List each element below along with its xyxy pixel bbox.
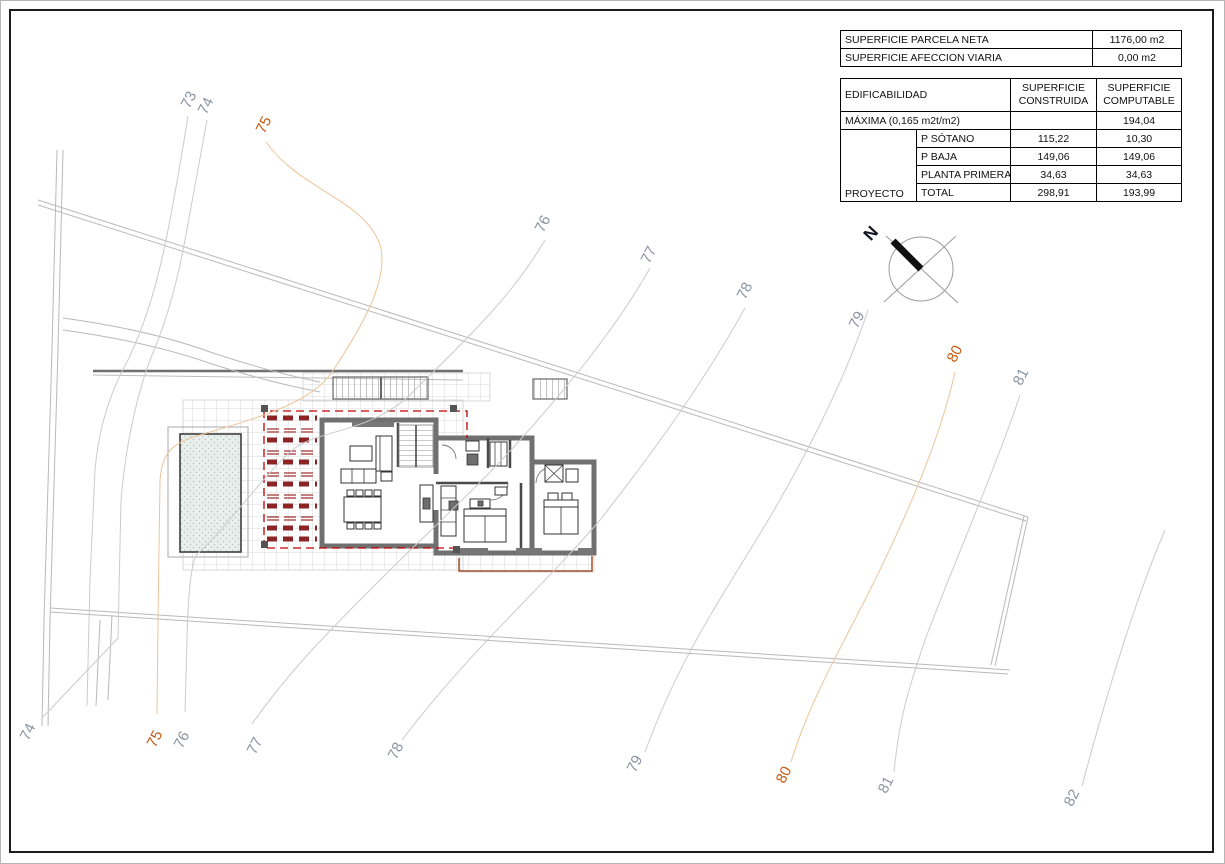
edificabilidad-table: EDIFICABILIDAD SUPERFICIE CONSTRUIDA SUP… xyxy=(840,78,1182,202)
bathroom-sink xyxy=(466,441,479,451)
sink xyxy=(423,498,430,509)
maxima-construida xyxy=(1011,112,1097,130)
primera-construida: 34,63 xyxy=(1011,166,1097,184)
table-row: SUPERFICIE PARCELA NETA 1176,00 m2 xyxy=(841,31,1182,49)
shelf xyxy=(566,469,578,482)
wardrobe-shelves xyxy=(441,486,456,536)
table-row-sotano: PROYECTO P SÓTANO 115,22 10,30 xyxy=(841,130,1182,148)
contour-label-77b: 77 xyxy=(244,735,267,758)
parcel-neta-value: 1176,00 m2 xyxy=(1093,31,1182,49)
pergola-post xyxy=(450,405,457,412)
computable-header: SUPERFICIE COMPUTABLE xyxy=(1097,79,1182,112)
contour-label-80: 80 xyxy=(944,343,967,366)
baja-computable: 149,06 xyxy=(1097,148,1182,166)
sotano-label: P SÓTANO xyxy=(917,130,1011,148)
contour-label-79: 79 xyxy=(846,309,869,332)
parcel-area-table: SUPERFICIE PARCELA NETA 1176,00 m2 SUPER… xyxy=(840,30,1182,67)
total-label: TOTAL xyxy=(917,184,1011,202)
contour-label-78b: 78 xyxy=(385,740,408,763)
maxima-label: MÁXIMA (0,165 m2t/m2) xyxy=(841,112,1011,130)
maxima-computable: 194,04 xyxy=(1097,112,1182,130)
proyecto-group-label: PROYECTO xyxy=(841,130,917,202)
north-label: N xyxy=(860,222,882,244)
contour-label-82b: 82 xyxy=(1061,787,1084,810)
table-header-row: EDIFICABILIDAD SUPERFICIE CONSTRUIDA SUP… xyxy=(841,79,1182,112)
table-row-maxima: MÁXIMA (0,165 m2t/m2) 194,04 xyxy=(841,112,1182,130)
side-table xyxy=(381,472,392,481)
pillow xyxy=(548,493,558,500)
window-sill xyxy=(460,548,488,554)
contour-label-81: 81 xyxy=(1010,366,1033,389)
toilet xyxy=(467,454,478,465)
contour-label-81b: 81 xyxy=(875,774,898,797)
sotano-construida: 115,22 xyxy=(1011,130,1097,148)
pergola-post xyxy=(453,546,460,553)
contour-label-75b: 75 xyxy=(144,728,167,751)
contour-label-77: 77 xyxy=(638,244,661,267)
contour-label-78: 78 xyxy=(734,280,757,303)
parcel-viaria-label: SUPERFICIE AFECCION VIARIA xyxy=(841,49,1093,67)
contour-label-76b: 76 xyxy=(171,729,194,752)
pergola-post xyxy=(261,405,268,412)
contour-label-76: 76 xyxy=(532,213,555,236)
pool xyxy=(168,427,248,557)
window-sill xyxy=(578,548,593,554)
desk xyxy=(495,487,507,495)
construida-header: SUPERFICIE CONSTRUIDA xyxy=(1011,79,1097,112)
edificabilidad-header: EDIFICABILIDAD xyxy=(841,79,1011,112)
table-row: SUPERFICIE AFECCION VIARIA 0,00 m2 xyxy=(841,49,1182,67)
sotano-computable: 10,30 xyxy=(1097,130,1182,148)
pergola-post xyxy=(261,541,268,548)
contour-label-80b: 80 xyxy=(773,764,796,787)
total-construida: 298,91 xyxy=(1011,184,1097,202)
primera-label: PLANTA PRIMERA xyxy=(917,166,1011,184)
contour-label-75: 75 xyxy=(253,114,276,137)
primera-computable: 34,63 xyxy=(1097,166,1182,184)
window-sill xyxy=(516,548,542,554)
north-needle xyxy=(893,241,921,269)
parcel-neta-label: SUPERFICIE PARCELA NETA xyxy=(841,31,1093,49)
baja-label: P BAJA xyxy=(917,148,1011,166)
north-arrow: N xyxy=(860,222,958,303)
baja-construida: 149,06 xyxy=(1011,148,1097,166)
sofa xyxy=(341,469,376,483)
contour-label-74b: 74 xyxy=(17,721,40,744)
pillow xyxy=(562,493,572,500)
parcel-viaria-value: 0,00 m2 xyxy=(1093,49,1182,67)
coffee-table xyxy=(350,446,372,461)
total-computable: 193,99 xyxy=(1097,184,1182,202)
dining-table xyxy=(344,497,381,522)
site-plan-sheet: { "sheet": {"type": "architectural-site-… xyxy=(0,0,1225,864)
sofa-chaise xyxy=(376,436,392,471)
contour-label-79b: 79 xyxy=(624,753,647,776)
